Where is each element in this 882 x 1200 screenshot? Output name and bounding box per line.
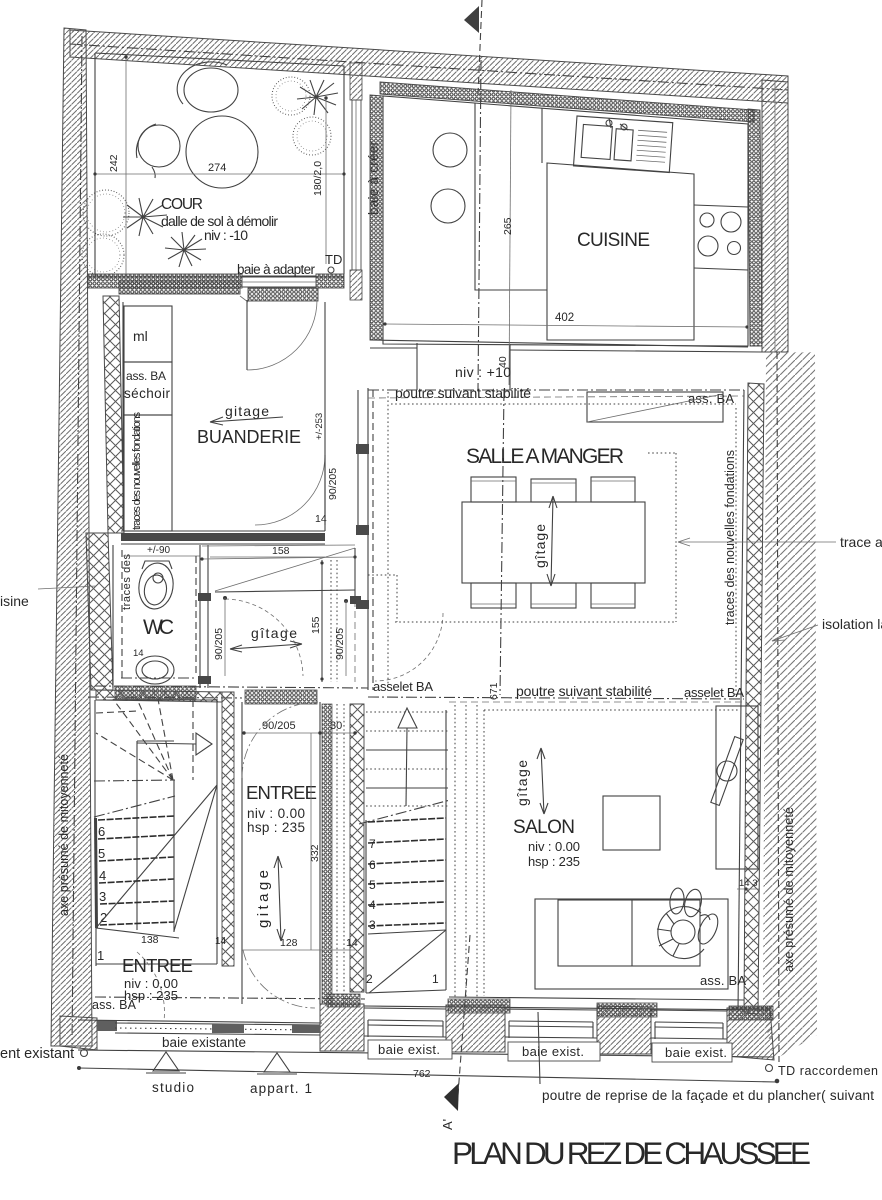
- svg-text:242: 242: [108, 154, 120, 172]
- svg-text:niv : -10: niv : -10: [204, 227, 248, 243]
- svg-text:TD raccordemen: TD raccordemen: [778, 1064, 878, 1078]
- svg-text:isolation la: isolation la: [822, 616, 882, 632]
- svg-text:ass. BA: ass. BA: [92, 998, 137, 1012]
- svg-text:158: 158: [272, 545, 290, 557]
- svg-text:ENTREE: ENTREE: [246, 782, 317, 803]
- svg-text:402: 402: [555, 312, 574, 324]
- svg-text:332: 332: [309, 844, 321, 862]
- svg-text:baie existante: baie existante: [162, 1035, 246, 1050]
- svg-text:poutre de reprise de la façade: poutre de reprise de la façade et du pla…: [542, 1088, 874, 1103]
- svg-text:ml: ml: [133, 328, 148, 344]
- svg-text:WC: WC: [143, 616, 174, 639]
- svg-text:7: 7: [369, 837, 376, 851]
- svg-text:+/-90: +/-90: [147, 545, 171, 556]
- svg-text:155: 155: [310, 616, 322, 634]
- svg-text:762: 762: [413, 1068, 431, 1080]
- svg-text:90/205: 90/205: [334, 628, 346, 660]
- svg-text:274: 274: [208, 162, 226, 174]
- svg-text:niv : 0.00: niv : 0.00: [528, 839, 580, 854]
- svg-text:2: 2: [366, 972, 373, 986]
- svg-text:BUANDERIE: BUANDERIE: [197, 427, 301, 447]
- svg-text:1: 1: [97, 948, 104, 963]
- svg-text:3: 3: [99, 889, 106, 904]
- svg-text:traces des nouvelles fondation: traces des nouvelles fondations: [131, 412, 143, 531]
- svg-text:14: 14: [346, 937, 358, 949]
- svg-text:gîtage: gîtage: [251, 625, 297, 641]
- svg-text:poutre suivant stabilité: poutre suivant stabilité: [395, 385, 531, 401]
- svg-text:1: 1: [432, 972, 439, 986]
- svg-text:5: 5: [369, 878, 376, 892]
- svg-text:TD: TD: [325, 252, 342, 267]
- svg-text:ent existant: ent existant: [0, 1046, 74, 1062]
- svg-text:baie exist.: baie exist.: [378, 1042, 440, 1057]
- svg-text:gitage: gitage: [225, 403, 269, 419]
- svg-text:265: 265: [502, 217, 514, 235]
- svg-text:6: 6: [98, 824, 105, 839]
- svg-text:ass. BA: ass. BA: [126, 369, 166, 383]
- svg-text:CUISINE: CUISINE: [577, 230, 650, 251]
- svg-text:180/2,0: 180/2,0: [312, 161, 324, 196]
- svg-text:4: 4: [99, 868, 106, 883]
- svg-text:30: 30: [330, 720, 342, 732]
- svg-text:axe présumé de mitoyenneté: axe présumé de mitoyenneté: [782, 807, 796, 972]
- svg-text:hsp : 235: hsp : 235: [247, 820, 305, 835]
- svg-text:baie à adapter: baie à adapter: [237, 262, 316, 277]
- svg-text:5: 5: [98, 846, 105, 861]
- svg-text:14: 14: [315, 513, 327, 525]
- svg-text:gîtage: gîtage: [514, 760, 530, 806]
- svg-text:14: 14: [215, 936, 227, 947]
- svg-text:appart. 1: appart. 1: [250, 1081, 312, 1096]
- svg-text:asselet BA: asselet BA: [373, 679, 433, 694]
- svg-text:A': A': [440, 1119, 455, 1130]
- svg-text:isine: isine: [0, 593, 29, 609]
- svg-text:trace a: trace a: [840, 534, 882, 550]
- svg-text:SALLE A MANGER: SALLE A MANGER: [466, 445, 624, 468]
- svg-text:traces des nouvelles fondation: traces des nouvelles fondations: [723, 450, 737, 625]
- svg-text:asselet BA: asselet BA: [684, 685, 744, 700]
- svg-text:studio: studio: [152, 1080, 194, 1095]
- svg-text:3: 3: [369, 918, 376, 932]
- svg-text:SALON: SALON: [513, 817, 575, 838]
- svg-text:128: 128: [280, 937, 298, 949]
- svg-text:hsp : 235: hsp : 235: [528, 854, 580, 869]
- svg-text:séchoir: séchoir: [124, 386, 171, 401]
- svg-text:poutre suivant stabilité: poutre suivant stabilité: [516, 683, 652, 699]
- svg-text:14: 14: [133, 648, 144, 659]
- svg-text:+/-253: +/-253: [314, 413, 325, 440]
- svg-text:gîtage: gîtage: [532, 524, 548, 568]
- svg-text:baie exist.: baie exist.: [522, 1044, 584, 1059]
- svg-text:traces des: traces des: [121, 554, 133, 611]
- svg-text:138: 138: [141, 934, 159, 946]
- svg-text:90/205: 90/205: [327, 468, 339, 500]
- svg-text:90/205: 90/205: [213, 628, 225, 660]
- svg-text:ENTREE: ENTREE: [122, 955, 193, 976]
- svg-text:axe présumé de mitoyenneté: axe présumé de mitoyenneté: [57, 754, 71, 916]
- svg-text:baie exist.: baie exist.: [665, 1045, 727, 1060]
- svg-text:niv : +10: niv : +10: [455, 364, 511, 380]
- svg-text:ass. BA: ass. BA: [700, 973, 746, 988]
- svg-text:COUR: COUR: [161, 196, 203, 213]
- svg-text:PLAN DU REZ DE CHAUSSEE: PLAN DU REZ DE CHAUSSEE: [452, 1135, 811, 1171]
- svg-text:4: 4: [369, 898, 376, 912]
- svg-text:6: 6: [369, 858, 376, 872]
- svg-text:14 3: 14 3: [739, 878, 758, 889]
- svg-text:niv : 0.00: niv : 0.00: [247, 806, 305, 821]
